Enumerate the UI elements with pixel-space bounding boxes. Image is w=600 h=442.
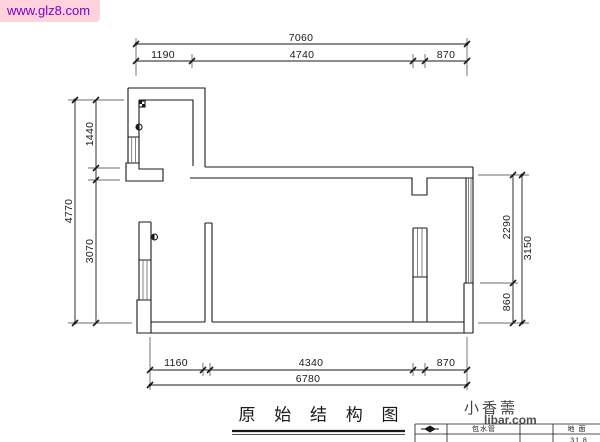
title-underline [232, 431, 405, 435]
flue-symbol [139, 101, 145, 107]
dim-bottom-seg-1: 4340 [299, 357, 324, 369]
legend-leader-arrow-icon [421, 426, 439, 433]
dim-right-seg-0: 2290 [501, 215, 513, 240]
dim-left-total: 4770 [63, 199, 75, 224]
pipe-riser-icon [152, 234, 158, 240]
title-block-floor-label: 地 面 [568, 424, 587, 434]
dim-top-seg-2: 870 [437, 49, 455, 61]
dim-left-seg-0: 1440 [84, 122, 96, 147]
title-block-partial-value: 31.8 [570, 438, 588, 442]
walls [126, 88, 473, 333]
dim-bottom-total: 6780 [296, 373, 321, 385]
watermark-glz8: www.glz8.com [0, 0, 100, 22]
dim-right-total: 3150 [522, 236, 534, 261]
dim-left-seg-1: 3070 [84, 239, 96, 264]
window-hatches [132, 137, 471, 300]
dimension-lines [75, 44, 522, 385]
drawing-canvas: 7060 1190 4740 870 4770 1440 3070 2290 3… [0, 0, 600, 442]
dim-bottom-seg-2: 870 [437, 357, 455, 369]
dim-right-seg-1: 860 [501, 293, 513, 311]
dim-bottom-seg-0: 1160 [164, 357, 188, 369]
watermark-site: libar.com [484, 413, 537, 427]
watermark-glz8-text: www.glz8.com [7, 3, 90, 18]
pipe-riser-icon [136, 124, 142, 130]
drawing-title: 原 始 结 构 图 [239, 401, 406, 426]
dimension-ticks [72, 41, 525, 388]
dim-top-total: 7060 [289, 32, 314, 44]
dim-top-seg-1: 4740 [290, 49, 315, 61]
extension-lines [68, 38, 529, 390]
dim-top-seg-0: 1190 [151, 49, 175, 61]
